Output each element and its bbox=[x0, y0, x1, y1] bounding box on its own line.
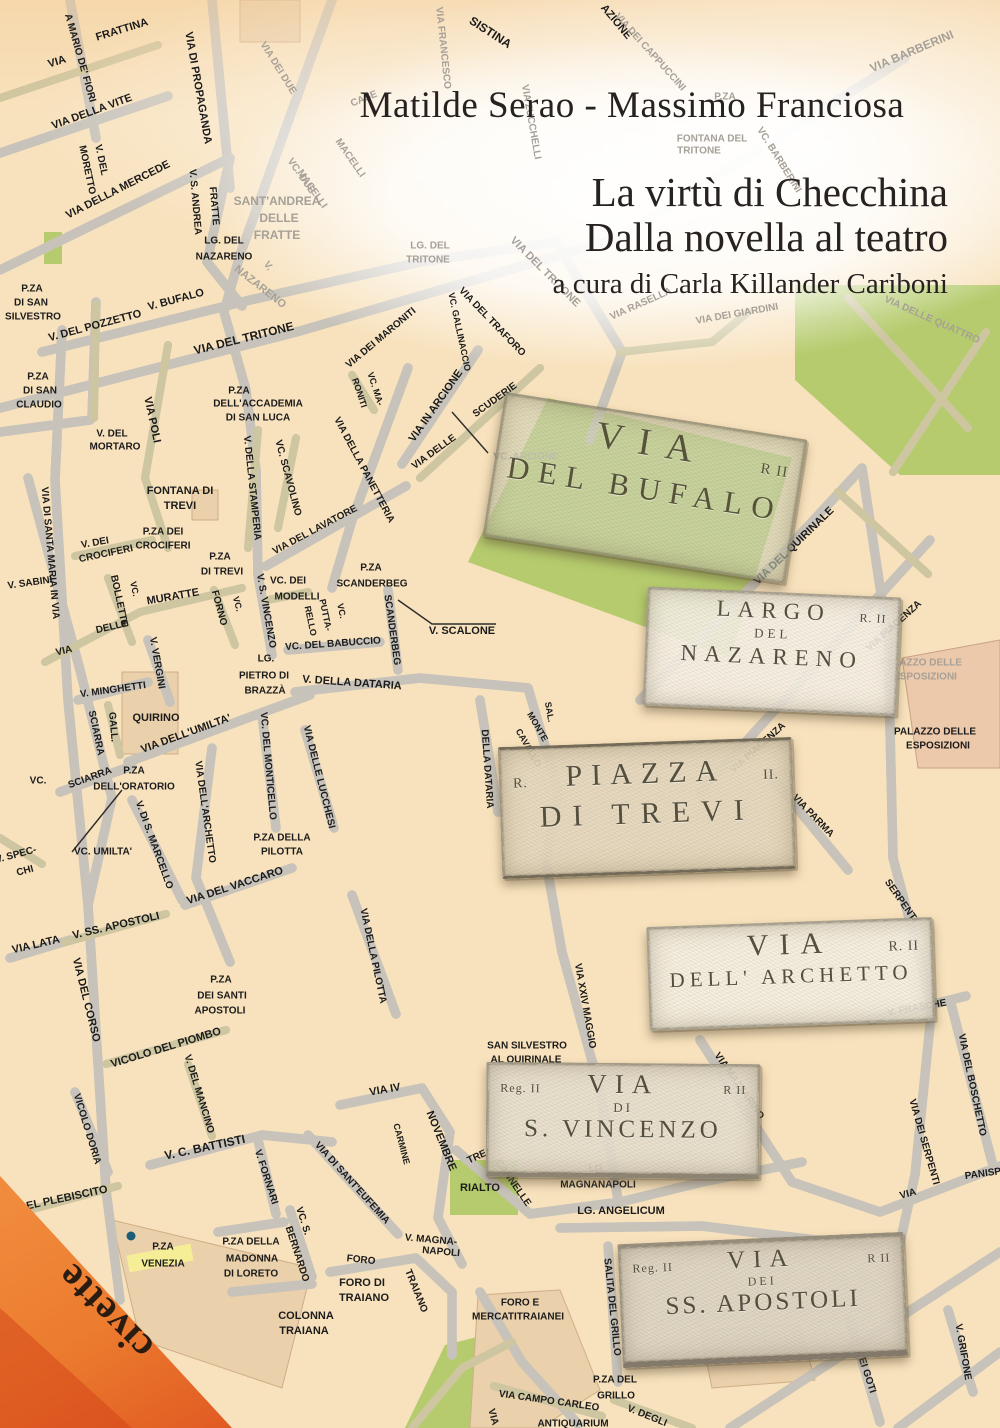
street-label: P.ZA DEL bbox=[593, 1375, 637, 1386]
street-label: PANISPERNA bbox=[964, 1162, 1000, 1182]
street-label: SCANDERBEG bbox=[336, 579, 407, 590]
street-label: SILVESTRO bbox=[5, 312, 61, 323]
street-label: V. DEL MANCINO bbox=[182, 1053, 216, 1135]
street-label: LG. ANGELICUM bbox=[577, 1205, 665, 1217]
book-cover: A MARIO DE' FIORIVIAFRATTINAVIA DI PROPA… bbox=[0, 0, 1000, 1428]
street-label: DI LORETO bbox=[224, 1269, 278, 1280]
street-label: NOVEMBRE bbox=[424, 1109, 459, 1172]
street-label: P.ZA DEI bbox=[143, 527, 184, 538]
street-label: RONITI bbox=[350, 377, 369, 409]
plaque-right-mark: II. bbox=[726, 767, 779, 785]
street-label: SISTINA bbox=[467, 14, 515, 52]
street-label: VIA CAMPO CARLEO bbox=[498, 1389, 600, 1414]
street-label: VIA DEL BOSCHETTO bbox=[956, 1033, 988, 1137]
street-label: VIA DELLA PILOTTA bbox=[357, 908, 388, 1005]
street-plaque-via-di-s-vincenzo: Reg. IIVIAR II DI S. VINCENZO bbox=[486, 1062, 761, 1179]
street-label: ANTIQUARIUM bbox=[537, 1419, 608, 1428]
street-label: VIA bbox=[46, 53, 67, 70]
plaque-line1: PIAZZA bbox=[565, 754, 727, 794]
street-label: TRAIANO bbox=[402, 1268, 429, 1315]
street-label: NAZARENO bbox=[232, 263, 289, 311]
street-label: VIA DELLA PANETTERIA bbox=[331, 415, 396, 524]
street-label: VC. DEL MONTICELLO bbox=[258, 712, 278, 821]
street-label: RELLO bbox=[303, 605, 319, 637]
street-label: ESPOSIZIONI bbox=[906, 741, 970, 752]
street-label: VC. UMILTA' bbox=[74, 847, 132, 858]
street-label: MADONNA bbox=[226, 1254, 278, 1265]
street-label: VC. DEL BABUCCIO bbox=[285, 635, 382, 653]
plaque-line1: VIA bbox=[726, 1245, 796, 1276]
location-dot bbox=[127, 1232, 136, 1241]
street-label: P.ZA DELLA bbox=[253, 833, 310, 844]
title-block: La virtù di Checchina Dalla novella al t… bbox=[553, 170, 948, 301]
street-label: CROCIFERI bbox=[136, 541, 191, 552]
street-label: VIA FRANCESCO bbox=[433, 6, 453, 89]
street-label: QUIRINO bbox=[132, 712, 180, 724]
street-label: CLAUDIO bbox=[16, 400, 62, 411]
street-label: GALL. bbox=[106, 712, 120, 743]
street-label: P.ZA bbox=[27, 372, 49, 383]
street-label: VIA LATA bbox=[11, 934, 61, 957]
street-label: VENEZIA bbox=[141, 1259, 184, 1270]
street-label: PILOTTA bbox=[261, 847, 303, 858]
street-label: V. S. ANDREA bbox=[187, 169, 204, 236]
street-label: SANT'ANDREA bbox=[234, 194, 321, 208]
plaque-left-mark bbox=[661, 613, 717, 615]
street-label: VIA bbox=[485, 1408, 500, 1427]
street-label: DELLA DATARIA bbox=[479, 729, 496, 809]
street-label: VIA DEI CAPPUCCINI bbox=[612, 11, 688, 93]
street-label: FORO DI bbox=[339, 1277, 385, 1289]
street-label: RIALTO bbox=[460, 1182, 500, 1194]
street-label: SCIARRA bbox=[86, 710, 106, 757]
street-label: DI SAN bbox=[23, 386, 57, 397]
street-plaque-piazza-di-trevi: R.PIAZZAII. DI TREVI bbox=[498, 737, 796, 879]
street-label: VIA DI SANTA MARIA IN VIA bbox=[39, 486, 62, 619]
street-label: PALAZZO DELLE bbox=[894, 727, 976, 738]
street-label: LG. DEL bbox=[204, 236, 243, 247]
street-label: TRITONE bbox=[677, 146, 721, 157]
street-label: V. SABINI bbox=[7, 575, 54, 592]
plaque-left-mark: Reg. II bbox=[500, 1081, 587, 1097]
street-label: P.ZA bbox=[123, 766, 145, 777]
street-label: V. SCALONE bbox=[429, 625, 495, 637]
plaque-left-mark: Reg. II bbox=[632, 1258, 727, 1277]
street-label: SAL. bbox=[543, 701, 556, 723]
street-label: V. DI S. MARCELLO bbox=[133, 799, 175, 890]
street-label: V. DEL bbox=[96, 429, 127, 440]
street-label: P.ZA bbox=[228, 386, 250, 397]
street-label: FORO E bbox=[501, 1298, 540, 1309]
street-label: VIA POLI bbox=[141, 396, 162, 444]
street-label: VIA DELLA MERCEDE bbox=[64, 158, 172, 221]
street-label: VIA DELLE LUCCHESI bbox=[301, 724, 337, 829]
street-plaque-largo-del-nazareno: LARGOR. II DEL NAZARENO bbox=[643, 587, 902, 717]
street-label: V. MINGHETTI bbox=[79, 680, 146, 700]
plaque-right-mark: R. II bbox=[833, 939, 919, 958]
street-label: VIA bbox=[55, 644, 74, 658]
street-label: TREVI bbox=[164, 500, 196, 512]
street-label: FONTANA DI bbox=[147, 485, 214, 497]
street-label: VC. DEI bbox=[270, 576, 306, 587]
street-label: V. DEL POZZETTO bbox=[47, 308, 143, 344]
street-label: FORO bbox=[346, 1253, 376, 1267]
street-label: V. GRIFONE bbox=[953, 1323, 974, 1381]
street-label: V. VERGINI bbox=[147, 636, 167, 690]
street-label: FONTANA DEL bbox=[677, 134, 748, 145]
street-label: A MARIO DE' FIORI bbox=[62, 13, 98, 104]
street-label: DELL'ORATORIO bbox=[93, 782, 175, 793]
street-plaque-via-dell-archetto: VIAR. II DELL' ARCHETTO bbox=[646, 917, 935, 1031]
street-label: MACELLI bbox=[333, 137, 368, 180]
plaque-right-mark: R II bbox=[795, 1250, 890, 1269]
street-label: GRILLO bbox=[597, 1391, 635, 1402]
street-label: DI SAN LUCA bbox=[226, 413, 290, 424]
street-label: V. bbox=[261, 259, 275, 272]
street-label: VIA DEL TRITONE bbox=[192, 319, 295, 357]
street-label: V. DELLA DATARIA bbox=[302, 673, 402, 692]
plaque-right-mark: R II bbox=[659, 1082, 746, 1098]
authors-line: Matilde Serao - Massimo Franciosa bbox=[330, 84, 934, 127]
street-label: FRATTE bbox=[254, 228, 300, 242]
street-label: MODELLI bbox=[275, 592, 320, 603]
street-label: CHI bbox=[15, 864, 35, 879]
plaque-line1: VIA bbox=[587, 1069, 659, 1101]
street-label: VICOLO DORIA bbox=[71, 1092, 103, 1165]
book-subtitle: Dalla novella al teatro bbox=[553, 215, 948, 260]
street-label: V. SPEC- bbox=[0, 844, 38, 865]
street-label: FRATTE bbox=[207, 186, 221, 226]
plaque-line2: DI TREVI bbox=[502, 792, 793, 836]
street-label: LG. bbox=[258, 654, 275, 665]
plaque-left-mark bbox=[661, 956, 747, 959]
street-label: TRITONE bbox=[406, 255, 450, 266]
plaque-line1: VIA bbox=[746, 927, 833, 964]
book-title: La virtù di Checchina bbox=[553, 170, 948, 215]
street-label: VIA DEL CORSO bbox=[70, 957, 103, 1044]
street-label: P.ZA bbox=[210, 975, 232, 986]
street-label: VIA DEI SERPENTI bbox=[906, 1098, 941, 1186]
street-label: MURATTE bbox=[146, 586, 200, 607]
street-label: TRAIANA bbox=[279, 1325, 329, 1337]
street-label: NAZARENO bbox=[196, 252, 253, 263]
street-label: MORTARO bbox=[90, 442, 141, 453]
street-label: DELLE bbox=[95, 618, 130, 636]
street-label: VIA DEI GIARDINI bbox=[695, 301, 779, 326]
street-label: VIA DEL VACCARO bbox=[185, 865, 285, 908]
street-label: FORNO bbox=[209, 589, 229, 627]
street-label: COLONNA bbox=[278, 1310, 334, 1322]
street-label: VIA IV bbox=[368, 1081, 402, 1098]
street-label: SAN SILVESTRO bbox=[487, 1041, 567, 1052]
street-label: FRATTINA bbox=[94, 16, 149, 43]
street-label: VC. bbox=[335, 602, 348, 619]
street-label: VIA XXIV MAGGIO bbox=[572, 963, 598, 1050]
street-label: V. BUFALO bbox=[147, 287, 206, 314]
plaque-right-mark: R II bbox=[705, 452, 789, 482]
street-label: VIA DELL'ARCHETTO bbox=[192, 760, 217, 864]
street-label: SCANDERBEG bbox=[381, 594, 402, 666]
street-label: VIA bbox=[899, 1187, 918, 1202]
street-label: VIA DEI MARONITI bbox=[344, 305, 419, 370]
street-plaque-via-dei-ss-apostoli: Reg. IIVIAR II DEI SS. APOSTOLI bbox=[617, 1232, 908, 1368]
street-label: V. FORNARI bbox=[252, 1148, 280, 1206]
street-label: V. C. BATTISTI bbox=[163, 1132, 246, 1163]
street-label: P.ZA bbox=[209, 552, 231, 563]
street-label: VIA DEI DUE bbox=[257, 40, 298, 97]
plaque-left-mark bbox=[513, 434, 595, 447]
street-label: VC. bbox=[231, 595, 245, 612]
street-label: PUTTA- bbox=[317, 598, 334, 632]
street-label: LG. DEL bbox=[410, 241, 449, 252]
street-label: VIA DI PROPAGANDA bbox=[182, 31, 214, 145]
street-label: V. DEGLI bbox=[625, 1403, 668, 1428]
street-label: VIA DELLE QUATTRO bbox=[883, 294, 982, 346]
street-label: P.ZA bbox=[152, 1242, 174, 1253]
street-label: V. SS. APOSTOLI bbox=[71, 910, 160, 942]
street-label: VIA DI SANT'EUFEMIA bbox=[312, 1140, 391, 1226]
street-label: V. DELLA STAMPERIA bbox=[241, 435, 263, 541]
plaque-left-mark: R. bbox=[513, 775, 566, 793]
street-label: P.ZA bbox=[21, 284, 43, 295]
street-label: VC. bbox=[30, 776, 47, 787]
street-label: DI TREVI bbox=[201, 567, 243, 578]
street-label: CARMINE bbox=[391, 1122, 412, 1165]
street-label: EL PLEBISCITO bbox=[25, 1183, 109, 1212]
street-label: DI SAN bbox=[14, 298, 48, 309]
street-label: BRAZZÀ bbox=[244, 684, 285, 697]
street-label: VC. bbox=[128, 580, 141, 597]
street-label: VIA BARBERINI bbox=[868, 27, 956, 75]
street-label: TRAIANO bbox=[339, 1292, 390, 1304]
street-label: DELL'ACCADEMIA bbox=[213, 399, 303, 410]
street-label: PIETRO DI bbox=[239, 671, 289, 682]
street-label: NAPOLI bbox=[422, 1245, 461, 1259]
street-label: DEI SANTI bbox=[197, 991, 247, 1002]
plaque-line1: LARGO bbox=[716, 596, 831, 627]
street-label: APOSTOLI bbox=[195, 1006, 246, 1017]
street-label: VIA DEL LAVATORE bbox=[271, 503, 360, 557]
street-label: VICOLO DEL PIOMBO bbox=[109, 1025, 223, 1070]
street-label: VIA IN ARCIONE bbox=[407, 368, 466, 445]
street-label: MERCATITRAIANEI bbox=[472, 1312, 564, 1323]
plaque-right-mark: R. II bbox=[830, 610, 886, 627]
street-label: V. DEL bbox=[92, 144, 109, 177]
street-label: MAGNANAPOLI bbox=[560, 1180, 636, 1191]
plaque-line3: S. VINCENZO bbox=[488, 1115, 758, 1145]
street-label: P.ZA bbox=[360, 563, 382, 574]
street-label: ESPOSIZIONI bbox=[893, 672, 957, 683]
street-label: DELLE bbox=[259, 211, 298, 225]
street-label: VIA PARMA bbox=[790, 792, 836, 839]
street-label: VC. SCAVOLINO bbox=[272, 439, 303, 518]
street-label: P.ZA DELLA bbox=[222, 1237, 279, 1248]
editor-line: a cura di Carla Killander Cariboni bbox=[553, 268, 948, 301]
